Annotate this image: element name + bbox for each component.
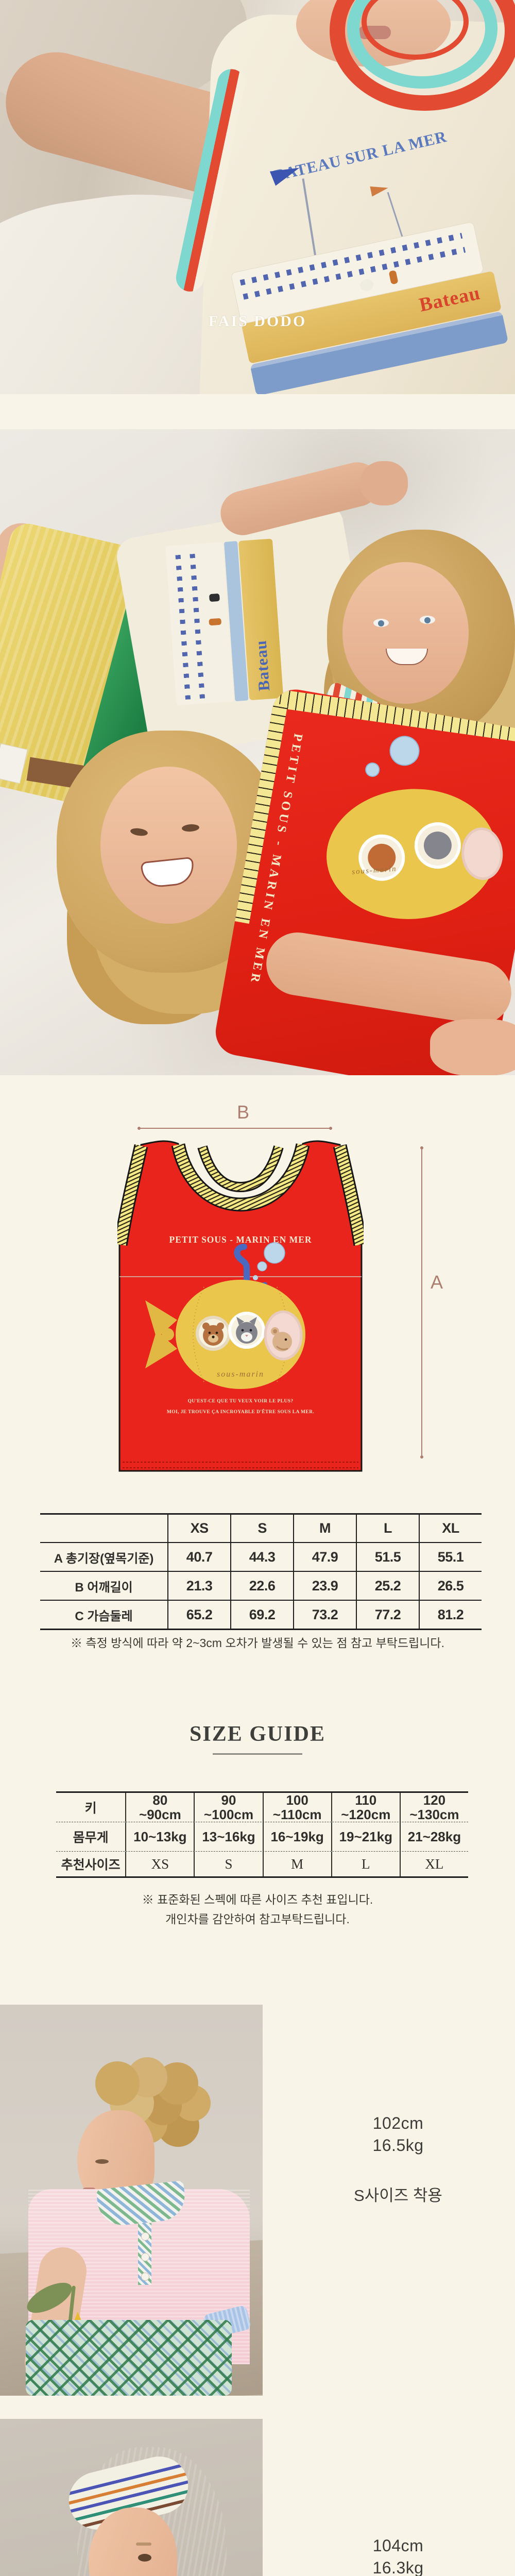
column-header: M	[293, 1515, 356, 1542]
eye	[130, 827, 148, 837]
ship-passenger-shape	[359, 278, 374, 292]
height-top: 110	[355, 1793, 376, 1807]
eye	[95, 2159, 109, 2164]
eye	[373, 619, 389, 627]
dimension-label-a: A	[431, 1272, 443, 1293]
weight-cell: 21~28kg	[400, 1822, 468, 1851]
size-guide-underline	[213, 1753, 302, 1755]
cell-value: 44.3	[230, 1543, 293, 1571]
height-cell: 110 ~120cm	[331, 1793, 400, 1822]
cell-value: 65.2	[167, 1601, 230, 1629]
height-bottom: ~110cm	[273, 1807, 322, 1822]
child-face	[100, 767, 237, 924]
print-figure	[209, 618, 221, 626]
size-cell: S	[194, 1852, 262, 1876]
eye	[138, 2554, 151, 2562]
weight-cell: 13~16kg	[194, 1822, 262, 1851]
bateau-print-sideways: Bateau	[165, 537, 310, 705]
print-figure	[209, 594, 220, 602]
size-guide-note-line2: 개인차를 감안하여 참고부탁드립니다.	[0, 1909, 515, 1927]
size-guide-title: SIZE GUIDE	[0, 1722, 515, 1747]
hero-photo-tanktop-model: BATEAU SUR LA MER Bateau FAIS DODO	[0, 0, 515, 394]
ship-passenger-shape	[389, 270, 399, 284]
cell-value: 26.5	[419, 1572, 482, 1600]
eyebrow	[136, 2543, 151, 2546]
bubble-medium	[257, 1262, 267, 1271]
bear-muzzle	[208, 1334, 218, 1343]
table-header-row: XS S M L XL	[40, 1515, 482, 1542]
button	[141, 2273, 149, 2281]
cell-value: 55.1	[419, 1543, 482, 1571]
cat-eye	[242, 1329, 244, 1332]
cat-eye	[250, 1329, 252, 1332]
bear-eye	[216, 1332, 218, 1334]
eye	[182, 824, 200, 832]
height-top: 120	[423, 1793, 445, 1807]
brand-logo-overlay: FAIS DODO	[0, 313, 515, 330]
row-label: 추천사이즈	[56, 1852, 125, 1876]
eye	[420, 616, 435, 624]
print-ship-deck	[165, 542, 234, 705]
patterned-skirt	[26, 2320, 232, 2396]
weight-cell: 19~21kg	[331, 1822, 400, 1851]
row-label: B 어깨길이	[40, 1572, 167, 1600]
inner-neck-rib	[202, 1147, 279, 1187]
mouse-ear-inner	[273, 1329, 277, 1333]
height-cell: 100 ~110cm	[263, 1793, 331, 1822]
bear-eye	[209, 1332, 211, 1334]
size-cell: XL	[400, 1852, 468, 1876]
cell-value: 69.2	[230, 1601, 293, 1629]
cell-value: 73.2	[293, 1601, 356, 1629]
height-bottom: ~130cm	[409, 1807, 459, 1822]
dimension-line-b	[139, 1128, 331, 1129]
cell-value: 21.3	[167, 1572, 230, 1600]
tee-submarine-print	[322, 783, 501, 924]
pupil	[378, 620, 384, 626]
print-window-row	[175, 552, 191, 700]
button	[141, 2232, 149, 2241]
height-bottom: ~90cm	[139, 1807, 181, 1822]
column-header: XL	[419, 1515, 482, 1542]
model-weight: 16.5kg	[272, 2134, 515, 2157]
ship-hull-brand-text: Bateau	[417, 282, 483, 317]
height-cell: 80 ~90cm	[125, 1793, 194, 1822]
size-guide-note-line1: ※ 표준화된 스펙에 따른 사이즈 추천 표입니다.	[0, 1890, 515, 1907]
bear-nose	[212, 1335, 214, 1338]
height-bottom: ~100cm	[204, 1807, 253, 1822]
smile	[141, 857, 196, 889]
height-cell: 90 ~100cm	[194, 1793, 262, 1822]
model-size-worn: S사이즈 착용	[272, 2182, 515, 2206]
column-header: L	[356, 1515, 419, 1542]
table-row-chest: C 가슴둘레 65.2 69.2 73.2 77.2 81.2	[40, 1600, 482, 1629]
cell-value: 22.6	[230, 1572, 293, 1600]
model-photo-m-size: PLAYERS 07	[0, 2419, 263, 2576]
cell-value: 51.5	[356, 1543, 419, 1571]
cell-value: 77.2	[356, 1601, 419, 1629]
tank-caption-line1: QU'EST-CE QUE TU VEUX VOIR LE PLUS?	[187, 1399, 293, 1404]
tank-script-text: sous-marin	[217, 1370, 264, 1379]
size-cell: L	[331, 1852, 400, 1876]
guide-row-size: 추천사이즈 XS S M L XL	[56, 1851, 468, 1876]
table-row-shoulder: B 어깨길이 21.3 22.6 23.9 25.2 26.5	[40, 1571, 482, 1600]
porthole-cat	[413, 821, 462, 870]
child-knee-shape	[430, 1019, 515, 1075]
photo-two-kids-on-bed: Bateau BATEAU SUR LA MER PETIT SOUS - MA…	[0, 429, 515, 1075]
height-cell: 120 ~130cm	[400, 1793, 468, 1822]
size-cell: M	[263, 1852, 331, 1876]
bubble-large	[264, 1243, 285, 1263]
size-guide-table: 키 80 ~90cm 90 ~100cm 100 ~110cm 110 ~120…	[56, 1791, 468, 1878]
cell-value: 25.2	[356, 1572, 419, 1600]
cell-value: 23.9	[293, 1572, 356, 1600]
mouse-eye	[285, 1338, 287, 1341]
row-label: C 가슴둘레	[40, 1601, 167, 1629]
row-label: 몸무게	[56, 1822, 125, 1851]
row-label: A 총기장(옆목기준)	[40, 1543, 167, 1571]
print-window-row	[190, 551, 205, 699]
mouse-head	[272, 1332, 292, 1351]
height-top: 80	[152, 1793, 167, 1807]
weight-cell: 10~13kg	[125, 1822, 194, 1851]
header-empty-cell	[40, 1515, 167, 1542]
column-header: S	[230, 1515, 293, 1542]
cell-value: 47.9	[293, 1543, 356, 1571]
model-photo-s-size	[0, 2005, 263, 2396]
weight-cell: 16~19kg	[263, 1822, 331, 1851]
tanktop-diagram: PETIT SOUS - MARIN EN MER	[117, 1139, 364, 1479]
bubble	[387, 734, 422, 768]
bubble-small	[253, 1275, 258, 1280]
smile	[386, 649, 428, 665]
cell-value: 81.2	[419, 1601, 482, 1629]
height-top: 90	[221, 1793, 236, 1807]
model-height: 104cm	[272, 2535, 515, 2557]
child-fist-shape	[360, 461, 408, 505]
height-bottom: ~120cm	[341, 1807, 390, 1822]
dimension-line-a	[421, 1148, 422, 1457]
column-header: XS	[167, 1515, 230, 1542]
size-cell: XS	[125, 1852, 194, 1876]
button-placket	[138, 2223, 151, 2285]
dimension-label-b: B	[232, 1101, 254, 1123]
measurement-note: ※ 측정 방식에 따라 약 2~3cm 오차가 발생될 수 있는 점 참고 부탁…	[0, 1633, 515, 1651]
bubble	[364, 761, 381, 778]
height-top: 100	[286, 1793, 308, 1807]
model-spec-caption: 104cm 16.3kg M사이즈 착용	[263, 2535, 515, 2576]
print-brand-text: Bateau	[251, 639, 273, 691]
row-label: 키	[56, 1793, 125, 1822]
model-height: 102cm	[272, 2112, 515, 2134]
tank-chest-text: PETIT SOUS - MARIN EN MER	[169, 1234, 312, 1245]
child-face	[342, 562, 469, 704]
pupil	[424, 617, 431, 623]
tank-caption-line2: MOI, JE TROUVE ÇA INCROYABLE D'ÊTRE SOUS…	[167, 1409, 314, 1415]
table-row-total-length: A 총기장(옆목기준) 40.7 44.3 47.9 51.5 55.1	[40, 1542, 482, 1571]
submarine-window	[460, 826, 505, 881]
tail-hub	[162, 1328, 174, 1341]
product-detail-page: BATEAU SUR LA MER Bateau FAIS DODO	[0, 0, 515, 2576]
button	[141, 2253, 149, 2261]
model-weight: 16.3kg	[272, 2557, 515, 2576]
measurement-table: XS S M L XL A 총기장(옆목기준) 40.7 44.3 47.9 5…	[40, 1513, 482, 1630]
child-curly-hair	[95, 2061, 140, 2106]
porthole-animal	[423, 831, 453, 860]
model-spec-caption: 102cm 16.5kg S사이즈 착용	[263, 2112, 515, 2206]
guide-row-height: 키 80 ~90cm 90 ~100cm 100 ~110cm 110 ~120…	[56, 1793, 468, 1822]
cell-value: 40.7	[167, 1543, 230, 1571]
guide-row-weight: 몸무게 10~13kg 13~16kg 16~19kg 19~21kg 21~2…	[56, 1822, 468, 1851]
